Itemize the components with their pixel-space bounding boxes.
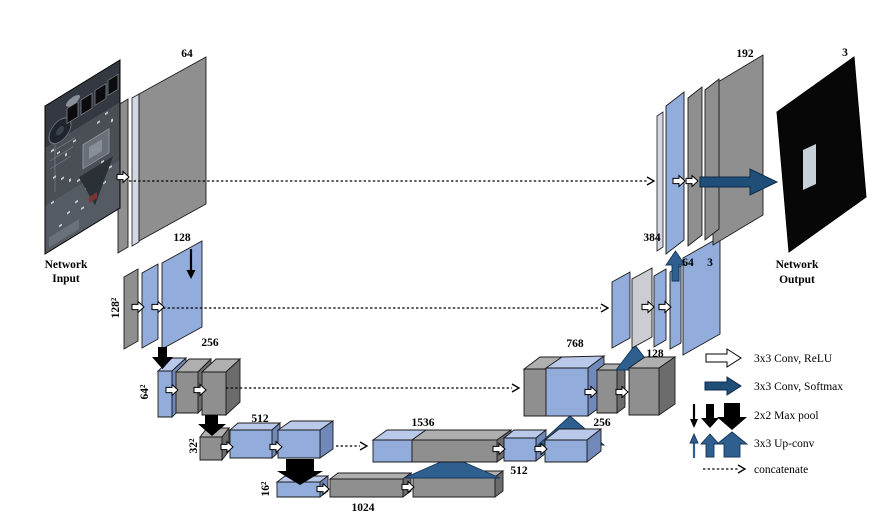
dec3-concat-map <box>546 368 588 416</box>
enc5-size-label: 16² <box>260 481 272 497</box>
encoder-level1 <box>118 57 206 253</box>
dec4-concat-map <box>412 440 497 462</box>
dec3-concat-map <box>524 369 546 416</box>
legend-conv-softmax-label: 3x3 Conv, Softmax <box>754 381 843 393</box>
legend: 3x3 Conv, ReLU 3x3 Conv, Softmax 2x2 Max… <box>690 349 843 476</box>
dec4-up-label: 256 <box>593 417 611 429</box>
dec4-concat-label: 1536 <box>412 417 435 429</box>
legend-max-pool-icon <box>717 403 747 430</box>
dec1-feature-map <box>688 87 702 246</box>
enc4-channels-label: 512 <box>251 413 269 425</box>
enc3-feature-map <box>158 371 172 417</box>
legend-concatenate-icon <box>738 465 745 473</box>
output-caption-line2: Output <box>779 274 815 286</box>
dec1-feature-map <box>713 55 763 245</box>
legend-conv-relu-label: 3x3 Conv, ReLU <box>754 353 833 365</box>
dec3-concat-label: 768 <box>566 338 584 350</box>
diagram-canvas: 64 128 128² 256 64² 512 32² 16² 1024 153… <box>0 0 888 529</box>
input-caption-line2: Input <box>52 273 80 285</box>
legend-up-conv-icon <box>717 432 747 457</box>
dec4-out-label: 512 <box>510 465 528 477</box>
network-output-image <box>777 57 866 252</box>
enc4-feature-map <box>230 430 272 458</box>
dec2-out-label: 64 <box>682 257 694 269</box>
decoder-level4 <box>373 416 604 462</box>
enc1-channels-label: 64 <box>181 48 193 60</box>
concatenate-arrowhead <box>647 177 654 185</box>
output-caption-line1: Network <box>776 259 819 271</box>
unet-architecture-diagram: 64 128 128² 256 64² 512 32² 16² 1024 153… <box>0 0 888 529</box>
output-channels-label: 3 <box>842 47 848 59</box>
dec1-feature-map-edge <box>657 112 663 251</box>
dec2-concat-label: 384 <box>643 232 661 244</box>
legend-concatenate-label: concatenate <box>754 464 808 476</box>
dec2-aux-label: 3 <box>707 257 713 269</box>
enc3-feature-map <box>202 372 226 415</box>
concatenate-arrowhead <box>601 304 608 312</box>
legend-conv-softmax-icon <box>705 377 741 395</box>
dec3-up-label: 128 <box>646 348 664 360</box>
output-defect-region <box>803 144 816 190</box>
enc5-feature-map <box>277 482 320 497</box>
concatenate-arrowhead <box>360 442 367 450</box>
dec2-feature-map <box>683 237 720 355</box>
enc2-size-label: 128² <box>110 297 122 318</box>
legend-max-pool-label: 2x2 Max pool <box>754 410 819 422</box>
legend-max-pool-icon <box>701 404 719 428</box>
input-caption-line1: Network <box>45 259 88 271</box>
dec3-feature-map <box>629 368 659 415</box>
enc5-channels-label: 1024 <box>352 502 375 514</box>
legend-conv-relu-icon <box>706 349 741 367</box>
dec1-concat-map <box>666 92 684 254</box>
enc3-channels-label: 256 <box>201 337 219 349</box>
enc2-channels-label: 128 <box>173 232 191 244</box>
enc5-feature-map <box>330 473 411 479</box>
concatenate-arrowhead <box>512 384 519 392</box>
enc4-size-label: 32² <box>188 438 200 454</box>
dec4-feature-map <box>504 438 536 461</box>
network-input-image <box>45 60 120 254</box>
dec4-concat-map <box>373 440 412 462</box>
legend-up-conv-label: 3x3 Up-conv <box>754 438 815 450</box>
legend-up-conv-icon <box>701 434 719 457</box>
enc1-feature-map-edge <box>132 94 139 246</box>
enc5-feature-map <box>330 479 403 497</box>
dec3-feature-map <box>597 370 617 413</box>
dec4-concat-map <box>412 430 511 440</box>
dec1-feature-map <box>705 79 719 240</box>
enc4-feature-map <box>200 437 222 460</box>
output-image <box>777 57 866 252</box>
enc3-size-label: 64² <box>139 384 151 400</box>
enc5-feature-map <box>413 477 495 497</box>
dec4-feature-map <box>545 440 587 462</box>
enc1-feature-map <box>139 57 206 241</box>
dec2-concat-map <box>612 272 630 348</box>
enc2-feature-map <box>162 241 202 349</box>
dec1-concat-label: 192 <box>736 48 754 60</box>
legend-up-conv-icon <box>690 434 698 443</box>
enc4-feature-map <box>278 430 320 458</box>
decoder-level1 <box>657 55 763 254</box>
legend-max-pool-icon <box>690 419 698 428</box>
decoder-level2 <box>612 237 720 355</box>
